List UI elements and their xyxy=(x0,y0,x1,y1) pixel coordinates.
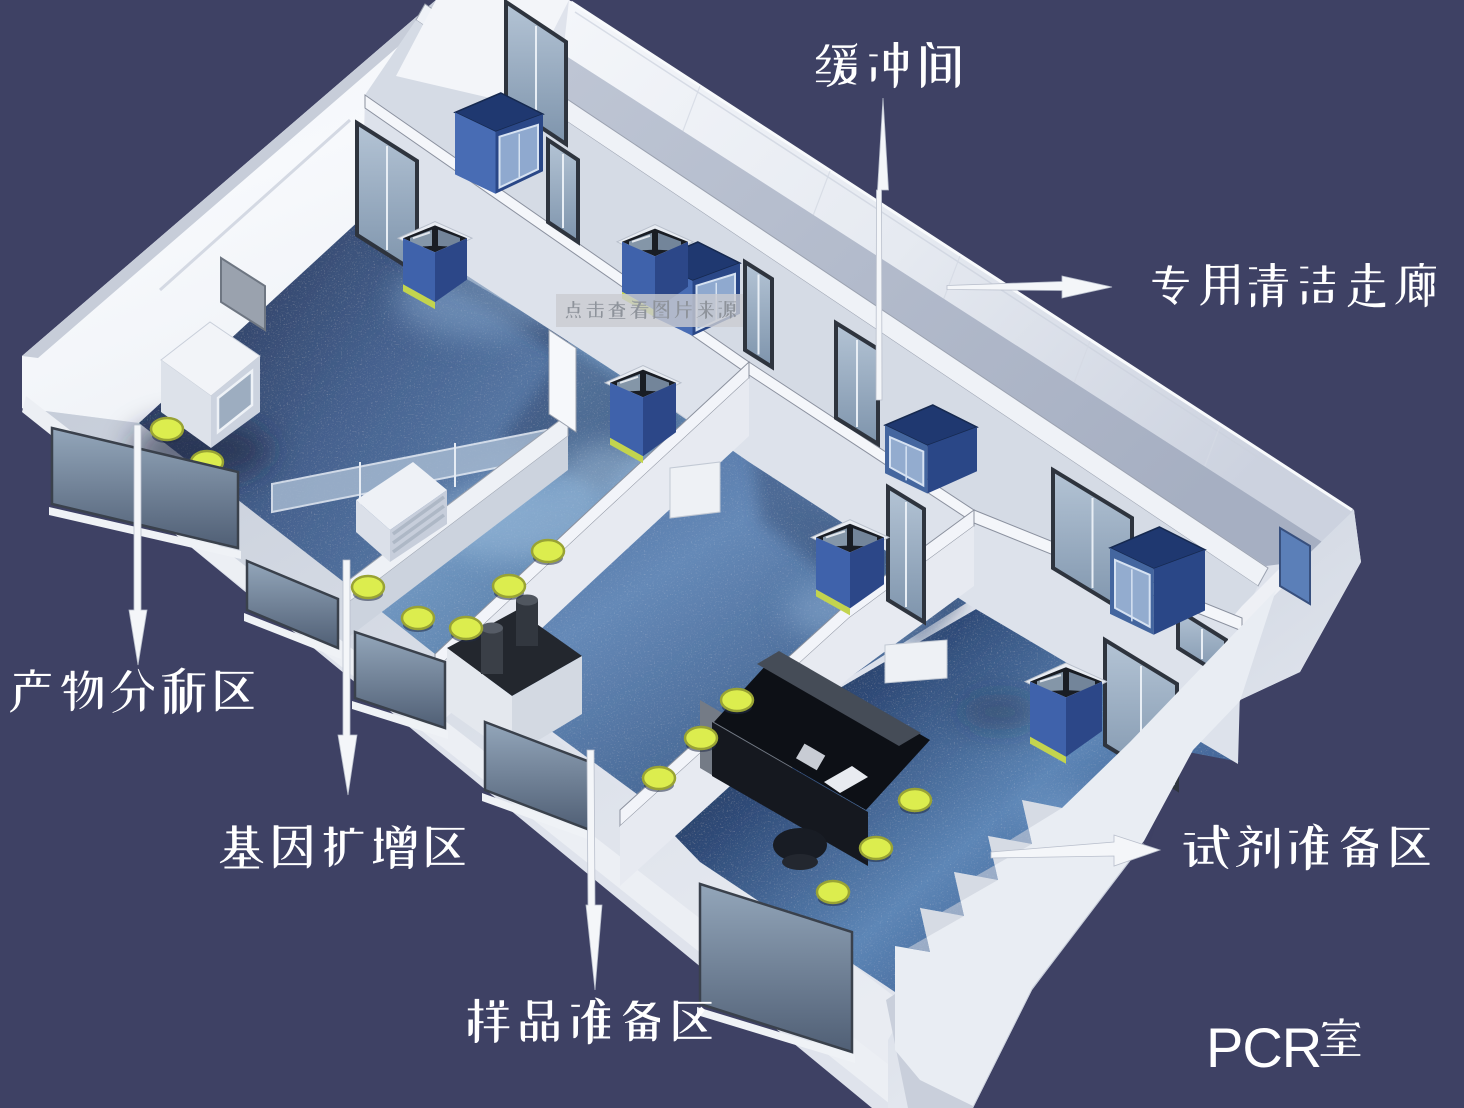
svg-text:PCR: PCR xyxy=(1206,1016,1321,1079)
